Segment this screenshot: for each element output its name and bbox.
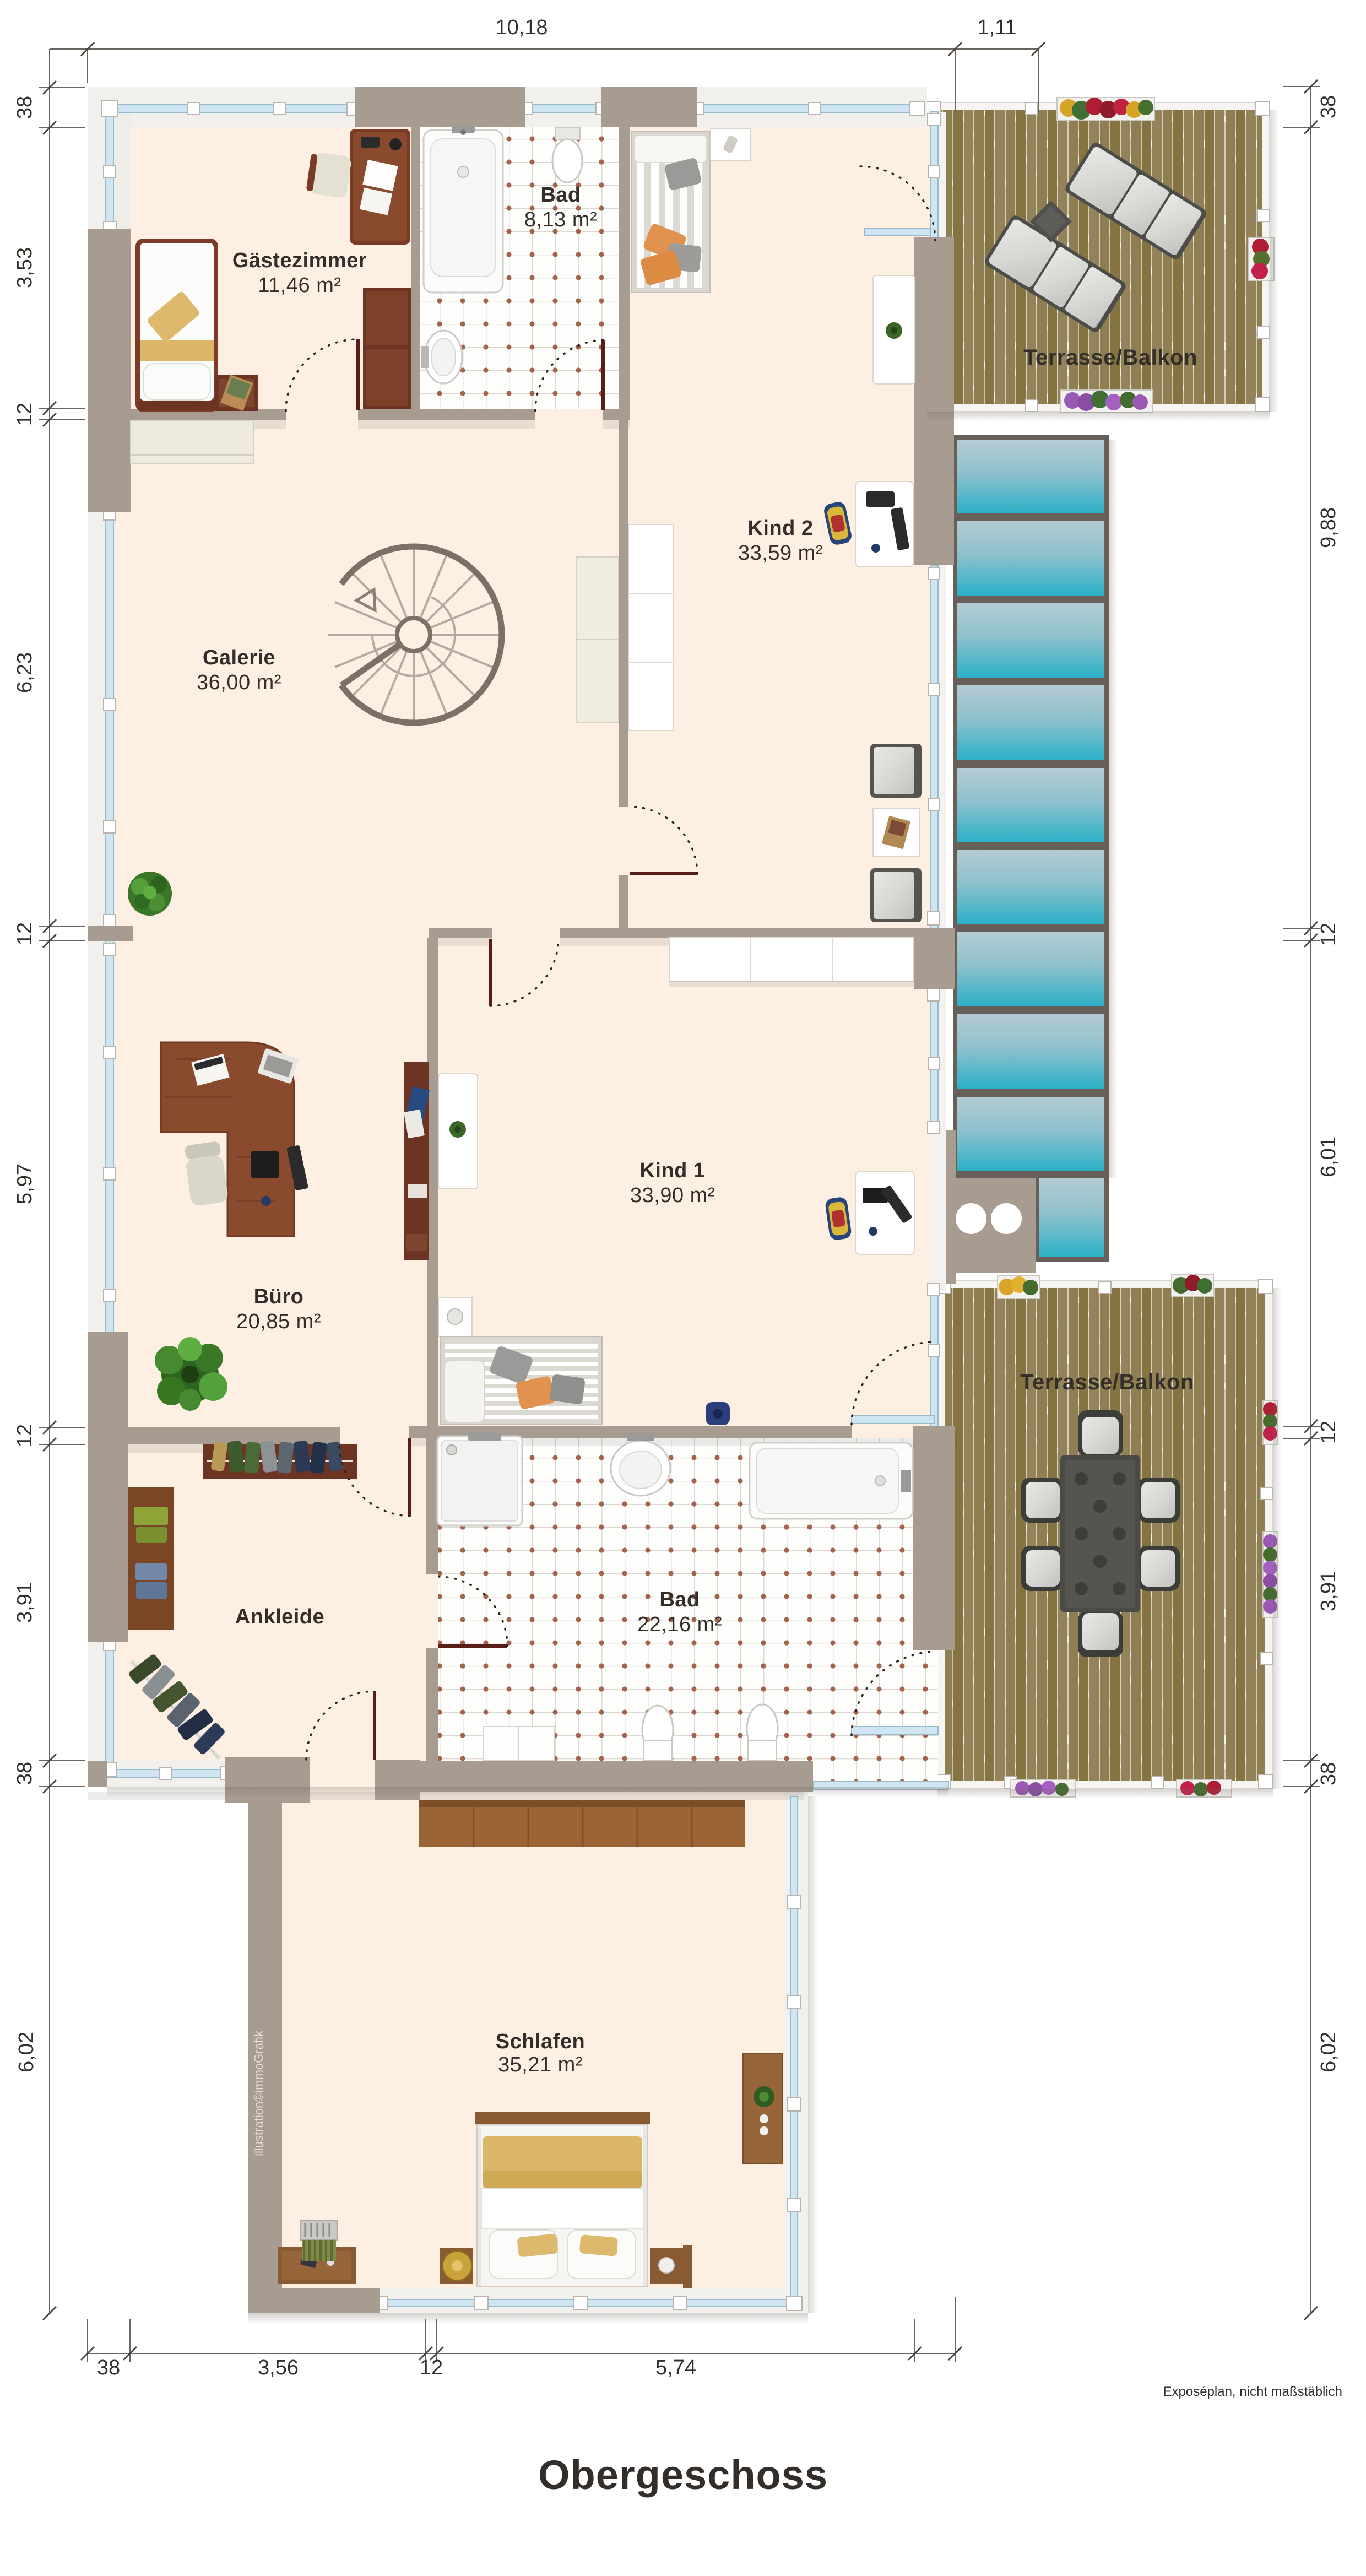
svg-text:Kind 1: Kind 1 [639,1159,705,1182]
svg-text:8,13 m²: 8,13 m² [524,208,597,231]
svg-text:6,23: 6,23 [13,652,36,693]
svg-text:5,74: 5,74 [655,2356,696,2379]
svg-text:33,59 m²: 33,59 m² [738,542,823,565]
svg-text:20,85 m²: 20,85 m² [236,1310,321,1333]
svg-text:3,91: 3,91 [1317,1571,1340,1611]
svg-text:12: 12 [13,403,36,426]
svg-text:38: 38 [1317,1762,1340,1785]
svg-text:6,02: 6,02 [1317,2032,1340,2072]
svg-text:Schlafen: Schlafen [496,2030,585,2053]
svg-text:33,90 m²: 33,90 m² [630,1184,715,1207]
svg-text:Terrasse/Balkon: Terrasse/Balkon [1020,1370,1194,1394]
svg-text:6,02: 6,02 [15,2032,38,2072]
svg-text:6,01: 6,01 [1317,1137,1340,1177]
svg-text:Kind 2: Kind 2 [747,517,813,540]
svg-text:35,21 m²: 35,21 m² [498,2053,583,2076]
svg-text:38: 38 [13,1762,36,1785]
svg-text:10,18: 10,18 [495,16,548,39]
svg-text:22,16 m²: 22,16 m² [637,1613,722,1636]
svg-text:36,00 m²: 36,00 m² [197,671,281,694]
svg-text:1,11: 1,11 [977,16,1016,39]
svg-text:3,91: 3,91 [13,1582,36,1623]
svg-text:12: 12 [420,2356,443,2379]
svg-text:11,46 m²: 11,46 m² [258,274,341,297]
svg-text:12: 12 [13,1424,36,1447]
svg-text:12: 12 [1317,923,1340,946]
svg-text:38: 38 [97,2356,120,2379]
svg-text:38: 38 [13,96,36,119]
svg-text:12: 12 [13,922,36,945]
svg-text:Ankleide: Ankleide [235,1605,324,1628]
svg-text:Obergeschoss: Obergeschoss [538,2452,828,2498]
svg-text:illustration©immoGrafik: illustration©immoGrafik [252,2030,265,2156]
svg-text:Exposéplan, nicht maßstäblich: Exposéplan, nicht maßstäblich [1163,2384,1343,2399]
svg-text:Bad: Bad [540,183,581,207]
svg-text:5,97: 5,97 [13,1163,36,1204]
svg-text:Terrasse/Balkon: Terrasse/Balkon [1023,345,1197,370]
svg-text:3,56: 3,56 [258,2356,299,2379]
svg-text:Bad: Bad [659,1588,700,1611]
svg-text:3,53: 3,53 [13,247,36,288]
svg-text:Galerie: Galerie [203,646,275,669]
svg-text:38: 38 [1317,95,1340,118]
svg-text:Gästezimmer: Gästezimmer [232,249,367,272]
svg-text:12: 12 [1317,1421,1340,1444]
svg-text:9,88: 9,88 [1317,507,1340,548]
svg-text:Büro: Büro [254,1285,304,1308]
